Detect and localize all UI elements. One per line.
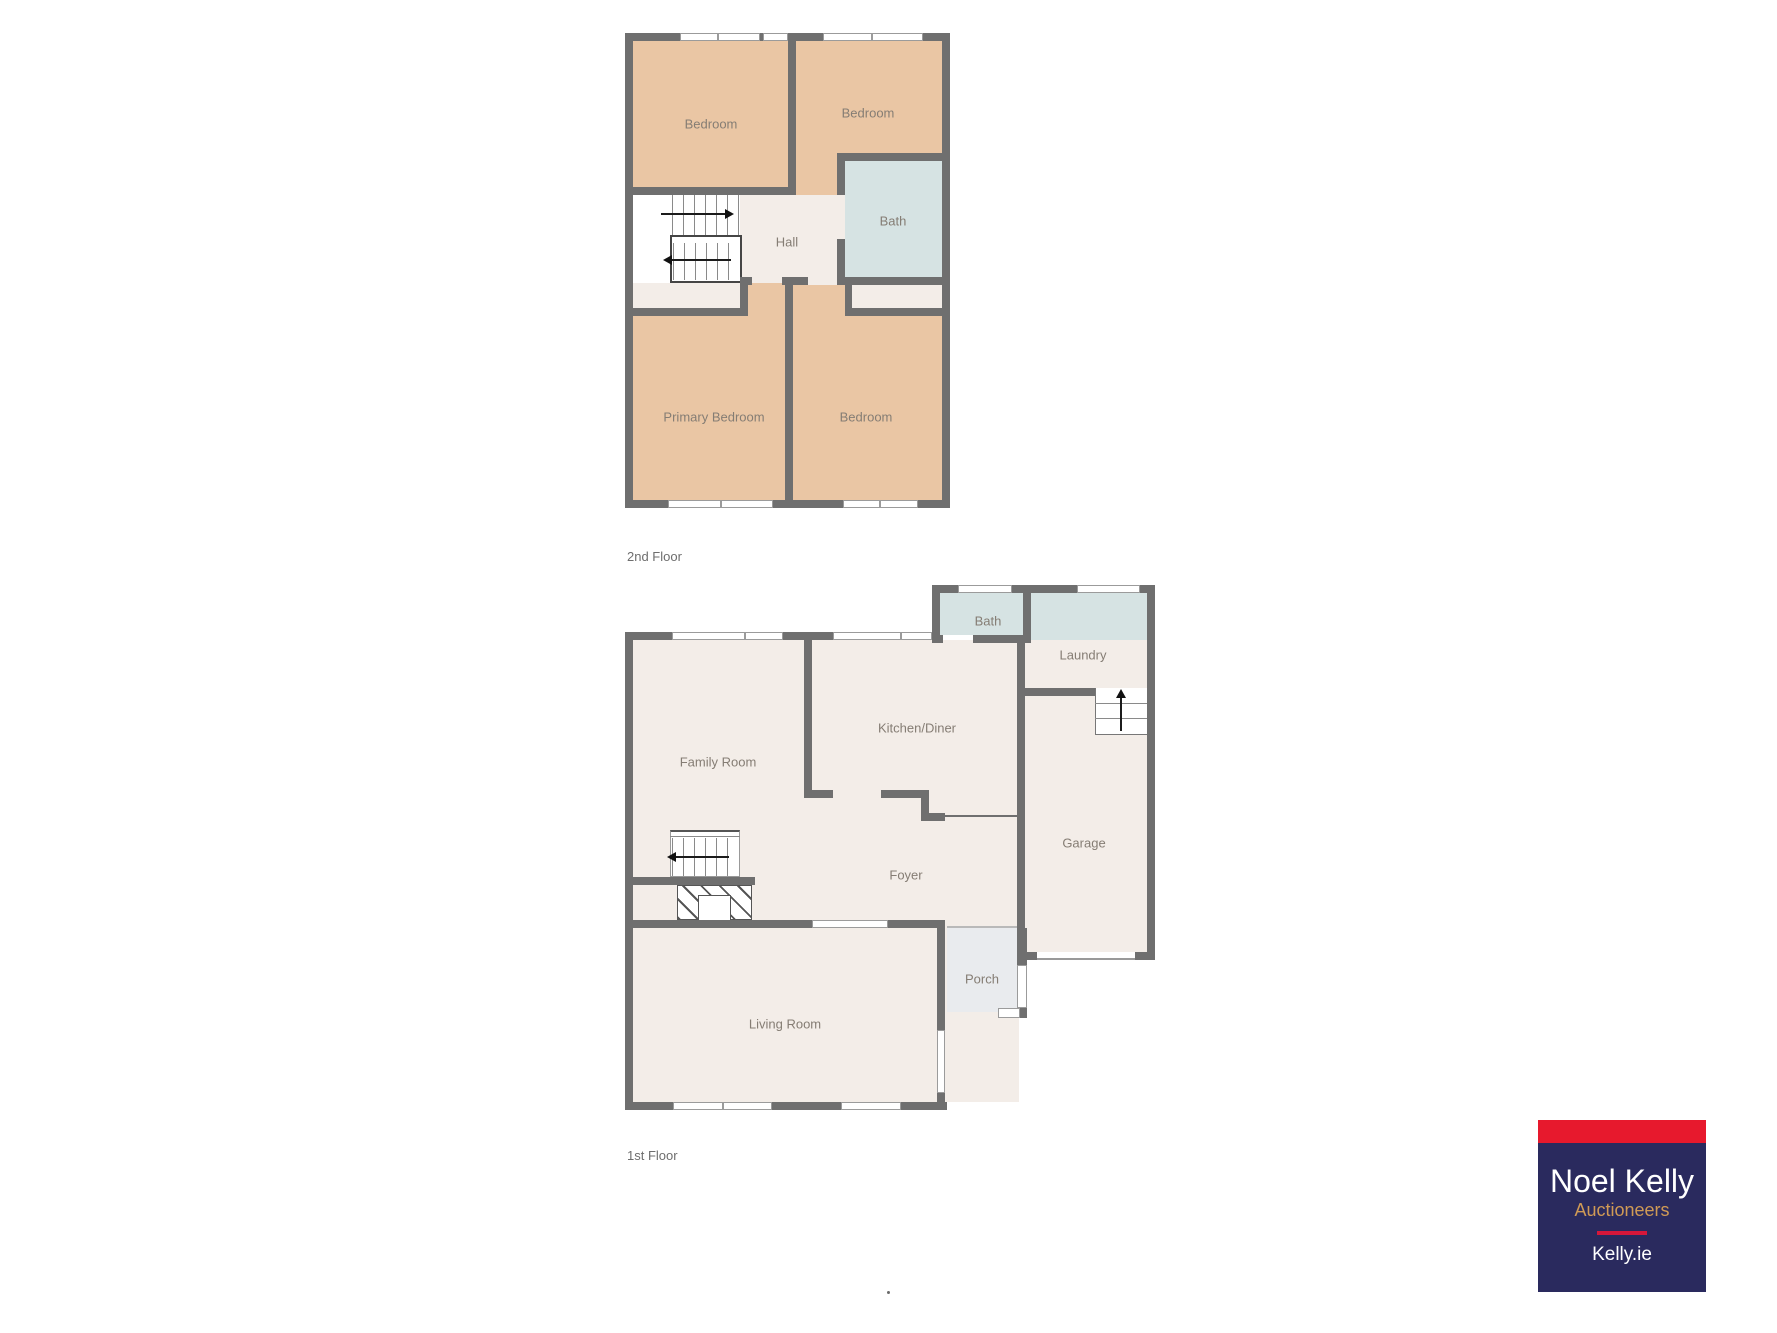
wall — [1135, 952, 1155, 960]
wall — [837, 153, 845, 195]
wall — [845, 308, 942, 316]
room-label: Bedroom — [685, 117, 738, 132]
wall — [845, 285, 852, 308]
window — [680, 33, 718, 41]
room-label: Hall — [776, 235, 798, 250]
window — [745, 632, 783, 640]
stairs-lower-flight-steps — [673, 243, 739, 280]
wall — [921, 790, 929, 821]
window — [673, 1102, 723, 1110]
floor-caption-1st: 1st Floor — [627, 1148, 678, 1163]
wall — [804, 632, 812, 798]
stairs-arrow-right-icon — [725, 209, 734, 219]
window — [937, 1030, 945, 1093]
room-bedroom-bottom-fill — [793, 285, 942, 500]
room-label: Bedroom — [840, 410, 893, 425]
wall — [932, 585, 940, 640]
room-label: Bath — [975, 614, 1002, 629]
wall — [625, 877, 755, 885]
room-label: Garage — [1062, 836, 1105, 851]
window — [763, 33, 788, 41]
logo-body: Noel Kelly Auctioneers Kelly.ie — [1538, 1143, 1706, 1292]
window — [958, 585, 1012, 593]
room-label: Primary Bedroom — [663, 410, 764, 425]
stairs-direction-line — [661, 213, 725, 215]
wall — [785, 283, 793, 500]
wall — [808, 790, 833, 798]
window — [823, 33, 872, 41]
stray-mark — [887, 1291, 890, 1294]
logo-red-band — [1538, 1120, 1706, 1143]
window — [841, 1102, 901, 1110]
window — [1017, 965, 1027, 1008]
wall — [929, 813, 945, 821]
wall — [932, 635, 943, 643]
wall — [625, 308, 748, 316]
room-porch-fill — [947, 928, 1017, 1012]
window — [833, 632, 901, 640]
room-bedroom-top-right-fill — [796, 41, 942, 153]
wall — [625, 33, 633, 508]
wall — [942, 33, 950, 508]
logo-website: Kelly.ie — [1592, 1244, 1652, 1266]
window — [843, 500, 880, 508]
room-label: Porch — [965, 972, 999, 987]
window — [668, 500, 721, 508]
window — [718, 33, 760, 41]
stairs-direction-line — [671, 259, 731, 261]
room-label: Bedroom — [842, 106, 895, 121]
stairs-arrow-left-icon — [663, 255, 672, 265]
wall — [788, 33, 796, 187]
wall — [625, 632, 633, 1110]
room-bedroom-top-left-fill — [633, 41, 788, 187]
window — [901, 632, 932, 640]
stairs-arrow-left-icon — [667, 852, 676, 862]
floorplan-1st-floor: Bath Laundry Kitchen/Diner Family Room F… — [625, 585, 1155, 1110]
wall — [1017, 928, 1027, 965]
wall — [625, 920, 812, 928]
room-bedroom-top-right-fill — [796, 153, 837, 195]
window — [723, 1102, 772, 1110]
wall — [837, 277, 942, 285]
window — [872, 33, 923, 41]
stairs-direction-line — [1120, 697, 1122, 731]
porch-threshold-line — [947, 926, 1017, 928]
room-label: Living Room — [749, 1017, 821, 1032]
doorway-line — [945, 815, 1017, 817]
window — [812, 920, 888, 928]
stairs-direction-line — [675, 856, 729, 858]
room-label: Foyer — [889, 868, 922, 883]
room-label: Laundry — [1060, 648, 1107, 663]
wall — [1017, 688, 1095, 696]
wall — [837, 239, 845, 277]
wall — [888, 920, 945, 928]
logo-title: Noel Kelly — [1550, 1165, 1694, 1197]
window — [721, 500, 773, 508]
garage-door-opening — [1037, 952, 1135, 960]
room-garage-fill — [1025, 640, 1147, 952]
logo-subtitle: Auctioneers — [1574, 1200, 1669, 1221]
understairs-closet — [698, 895, 731, 920]
window — [880, 500, 918, 508]
room-label: Family Room — [680, 755, 757, 770]
agency-logo: Noel Kelly Auctioneers Kelly.ie — [1538, 1120, 1706, 1292]
wall — [1147, 585, 1155, 960]
wall — [837, 153, 942, 161]
floorplan-2nd-floor: Bedroom Bedroom Bath Hall Primary Bedroo… — [625, 33, 950, 508]
stairs-arrow-up-icon — [1116, 689, 1126, 698]
window — [998, 1008, 1020, 1018]
floor-caption-2nd: 2nd Floor — [627, 549, 682, 564]
floorplan-page: Bedroom Bedroom Bath Hall Primary Bedroo… — [0, 0, 1777, 1333]
wall — [633, 187, 796, 195]
closet-fill — [852, 285, 942, 308]
wall — [1017, 635, 1025, 928]
room-label: Kitchen/Diner — [878, 721, 956, 736]
logo-divider — [1597, 1231, 1647, 1235]
window — [672, 632, 745, 640]
closet-fill — [633, 283, 740, 308]
room-label: Bath — [880, 214, 907, 229]
window — [1077, 585, 1140, 593]
stairs-landing-line — [670, 836, 740, 837]
